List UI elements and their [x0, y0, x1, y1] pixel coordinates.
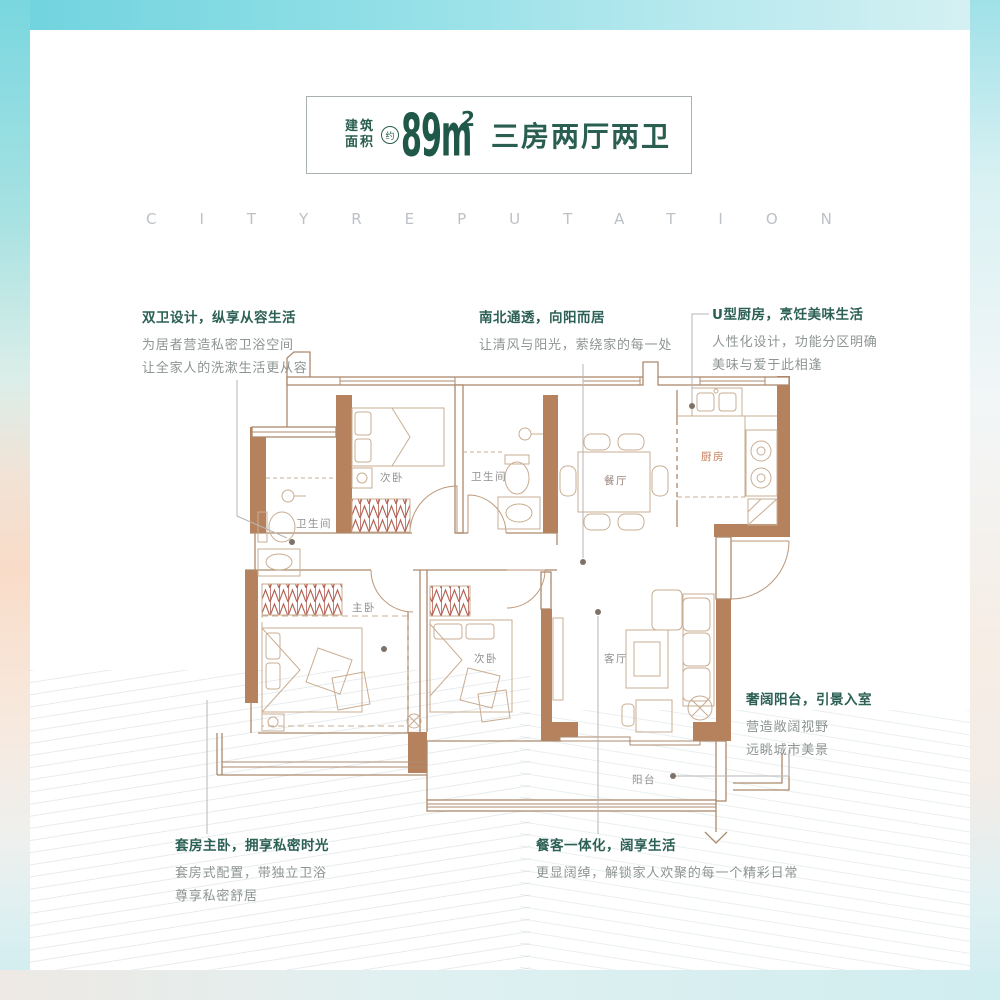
area-header-box: 建筑 面积 约 89m 2 三房两厅两卫 — [306, 96, 692, 174]
callout-balcony: 奢阔阳台，引景入室 营造敞阔视野 远眺城市美景 — [746, 688, 872, 763]
area-label-line1: 建筑 — [345, 119, 375, 135]
callout-title: U型厨房，烹饪美味生活 — [712, 303, 878, 323]
callout-line: 尊享私密舒居 — [175, 886, 329, 909]
watermark: CITYREPUTATION — [146, 210, 875, 228]
area-label: 建筑 面积 — [345, 119, 375, 150]
approx-badge: 约 — [381, 126, 399, 144]
area-label-line2: 面积 — [345, 135, 375, 151]
callout-dual-bath: 双卫设计，纵享从容生活 为居者营造私密卫浴空间 让全家人的洗漱生活更从容 — [142, 306, 308, 381]
callout-line: 让全家人的洗漱生活更从容 — [142, 358, 308, 381]
callout-u-kitchen: U型厨房，烹饪美味生活 人性化设计，功能分区明确 美味与爱于此相逢 — [712, 303, 878, 378]
callout-line: 为居者营造私密卫浴空间 — [142, 335, 308, 358]
callout-line: 美味与爱于此相逢 — [712, 355, 878, 378]
callout-dining-living: 餐客一体化，阔享生活 更显阔绰，解锁家人欢聚的每一个精彩日常 — [536, 834, 798, 886]
frame-right-band — [970, 0, 1000, 1000]
callout-line: 远眺城市美景 — [746, 740, 872, 763]
callout-line: 套房式配置，带独立卫浴 — [175, 863, 329, 886]
layout-text: 三房两厅两卫 — [491, 115, 671, 155]
frame-bottom-band — [0, 970, 1000, 1000]
callout-title: 南北通透，向阳而居 — [479, 306, 672, 326]
callout-line: 人性化设计，功能分区明确 — [712, 332, 878, 355]
area-superscript: 2 — [461, 107, 475, 131]
decorative-lines-bottom-left — [30, 670, 530, 970]
callout-title: 奢阔阳台，引景入室 — [746, 688, 872, 708]
callout-master-suite: 套房主卧，拥享私密时光 套房式配置，带独立卫浴 尊享私密舒居 — [175, 834, 329, 909]
frame-left-band — [0, 0, 30, 1000]
callout-line: 更显阔绰，解锁家人欢聚的每一个精彩日常 — [536, 863, 798, 886]
callout-title: 餐客一体化，阔享生活 — [536, 834, 798, 854]
callout-title: 双卫设计，纵享从容生活 — [142, 306, 308, 326]
frame-top-band — [0, 0, 1000, 30]
callout-line: 让清风与阳光，萦绕家的每一处 — [479, 335, 672, 358]
callout-north-south: 南北通透，向阳而居 让清风与阳光，萦绕家的每一处 — [479, 306, 672, 358]
callout-title: 套房主卧，拥享私密时光 — [175, 834, 329, 854]
callout-line: 营造敞阔视野 — [746, 717, 872, 740]
area-value: 89m — [401, 107, 463, 163]
